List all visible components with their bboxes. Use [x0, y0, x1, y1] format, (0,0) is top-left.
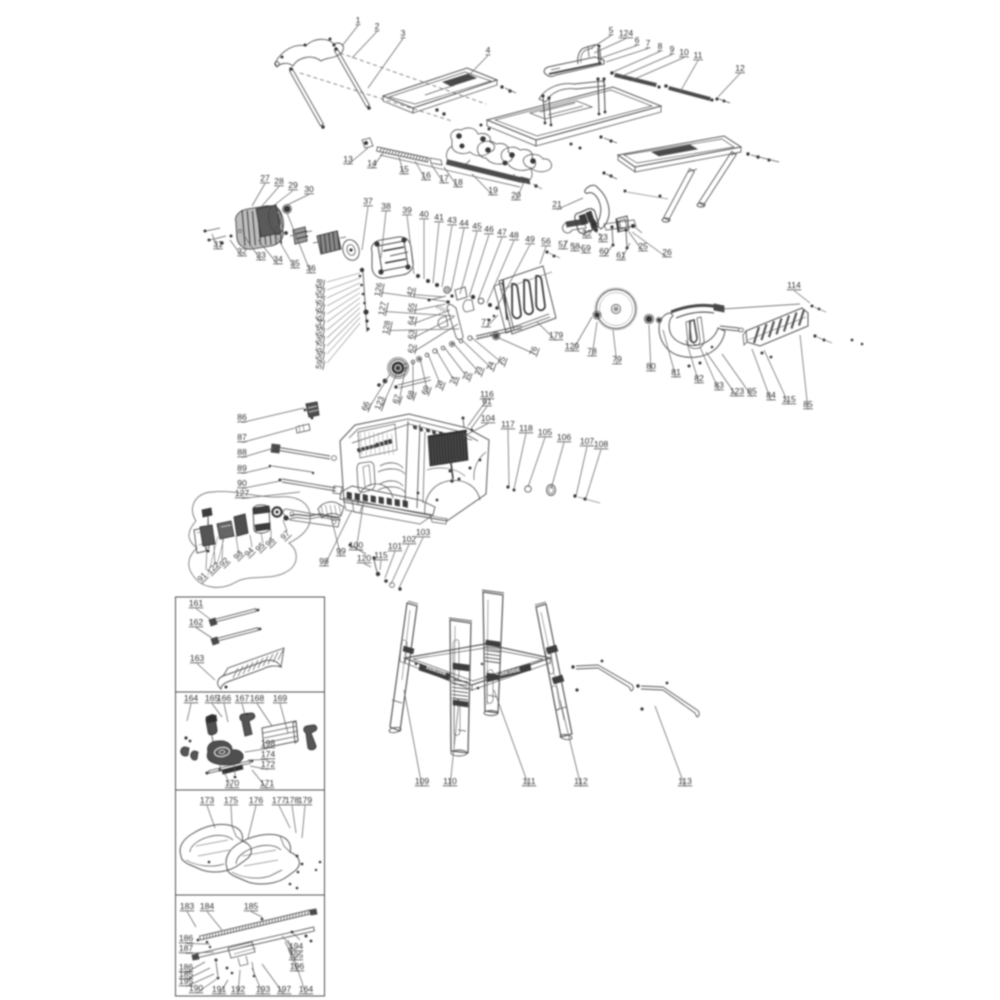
svg-text:186: 186 [179, 933, 194, 943]
svg-text:109: 109 [415, 776, 430, 786]
svg-text:179: 179 [298, 795, 313, 805]
svg-text:5: 5 [609, 25, 614, 35]
svg-text:58: 58 [570, 241, 580, 251]
svg-text:196: 196 [290, 961, 305, 971]
svg-text:173: 173 [200, 795, 215, 805]
svg-text:26: 26 [662, 247, 672, 257]
svg-text:193: 193 [256, 984, 271, 994]
svg-text:32: 32 [237, 246, 247, 256]
svg-text:101: 101 [388, 541, 403, 551]
svg-text:115: 115 [374, 550, 388, 560]
svg-text:190: 190 [189, 983, 204, 993]
svg-text:37: 37 [363, 196, 373, 206]
svg-text:192: 192 [231, 984, 246, 994]
svg-text:10: 10 [679, 47, 689, 57]
svg-text:117: 117 [501, 419, 515, 429]
svg-text:112: 112 [574, 776, 588, 786]
svg-text:2: 2 [375, 21, 380, 31]
svg-text:7: 7 [646, 38, 651, 48]
svg-text:83: 83 [714, 380, 724, 390]
svg-text:46: 46 [484, 224, 494, 234]
svg-text:114: 114 [787, 280, 801, 290]
svg-text:175: 175 [224, 795, 239, 805]
svg-text:164: 164 [184, 693, 199, 703]
svg-text:107: 107 [580, 436, 595, 446]
svg-text:82: 82 [694, 373, 704, 383]
svg-text:166: 166 [217, 693, 232, 703]
svg-text:197: 197 [277, 984, 292, 994]
svg-text:44: 44 [459, 218, 469, 228]
svg-text:6: 6 [635, 35, 640, 45]
svg-text:38: 38 [381, 201, 391, 211]
svg-text:23: 23 [598, 232, 608, 242]
svg-text:40: 40 [419, 209, 429, 219]
svg-text:29: 29 [288, 180, 298, 190]
svg-text:129: 129 [565, 341, 580, 351]
svg-text:85: 85 [803, 399, 813, 409]
svg-text:103: 103 [416, 527, 431, 537]
svg-text:118: 118 [519, 423, 533, 433]
svg-text:35: 35 [290, 258, 300, 268]
svg-text:89: 89 [237, 463, 247, 473]
svg-text:169: 169 [273, 693, 288, 703]
svg-text:47: 47 [497, 227, 507, 237]
svg-text:85: 85 [747, 386, 757, 396]
svg-text:18: 18 [453, 177, 463, 187]
svg-text:99: 99 [336, 546, 346, 556]
svg-text:36: 36 [306, 263, 316, 273]
svg-text:179: 179 [549, 330, 564, 340]
svg-text:80: 80 [646, 361, 656, 371]
svg-text:120: 120 [357, 553, 372, 563]
svg-text:1: 1 [356, 15, 361, 25]
svg-text:123: 123 [730, 386, 745, 396]
svg-text:21: 21 [552, 199, 562, 209]
svg-text:33: 33 [256, 250, 266, 260]
svg-text:57: 57 [558, 239, 568, 249]
svg-text:171: 171 [260, 778, 275, 788]
svg-text:20: 20 [511, 190, 521, 200]
svg-text:41: 41 [434, 212, 444, 222]
svg-text:19: 19 [488, 185, 498, 195]
svg-text:59: 59 [581, 243, 591, 253]
svg-text:15: 15 [399, 164, 409, 174]
svg-text:56: 56 [541, 236, 551, 246]
svg-text:61: 61 [616, 250, 626, 260]
svg-text:4: 4 [486, 45, 491, 55]
svg-text:106: 106 [557, 432, 572, 442]
svg-text:28: 28 [274, 176, 284, 186]
svg-text:105: 105 [538, 427, 553, 437]
svg-text:90: 90 [237, 478, 247, 488]
svg-text:100: 100 [349, 540, 364, 550]
svg-text:34: 34 [273, 254, 283, 264]
svg-text:45: 45 [472, 221, 482, 231]
svg-text:77: 77 [481, 317, 491, 327]
svg-text:162: 162 [189, 617, 204, 627]
svg-text:22: 22 [582, 228, 592, 238]
svg-text:174: 174 [261, 749, 276, 759]
svg-text:49: 49 [525, 234, 535, 244]
svg-text:43: 43 [447, 215, 457, 225]
svg-text:187: 187 [179, 943, 194, 953]
svg-text:170: 170 [225, 778, 240, 788]
svg-text:110: 110 [443, 776, 457, 786]
svg-text:9: 9 [670, 44, 675, 54]
svg-text:60: 60 [599, 246, 609, 256]
svg-text:61: 61 [482, 396, 492, 406]
svg-text:184: 184 [200, 901, 215, 911]
svg-text:111: 111 [522, 776, 535, 786]
svg-text:81: 81 [671, 367, 681, 377]
svg-text:16: 16 [421, 170, 431, 180]
svg-text:113: 113 [678, 776, 692, 786]
svg-text:12: 12 [735, 63, 745, 73]
svg-text:185: 185 [244, 901, 259, 911]
svg-text:17: 17 [439, 173, 449, 183]
svg-text:168: 168 [250, 693, 265, 703]
svg-text:78: 78 [587, 346, 597, 356]
svg-text:108: 108 [594, 439, 609, 449]
svg-text:11: 11 [694, 50, 703, 60]
svg-text:191: 191 [212, 984, 227, 994]
svg-text:163: 163 [190, 653, 205, 663]
svg-text:161: 161 [189, 598, 204, 608]
svg-text:183: 183 [180, 901, 195, 911]
svg-text:176: 176 [249, 795, 264, 805]
svg-text:98: 98 [319, 556, 329, 566]
svg-text:31: 31 [213, 239, 223, 249]
svg-text:87: 87 [237, 432, 247, 442]
svg-text:115: 115 [782, 394, 796, 404]
svg-text:198: 198 [261, 738, 276, 748]
svg-text:3: 3 [401, 28, 406, 38]
svg-text:164: 164 [299, 984, 314, 994]
svg-text:86: 86 [237, 412, 247, 422]
svg-text:48: 48 [509, 230, 519, 240]
svg-text:84: 84 [766, 390, 776, 400]
svg-text:14: 14 [367, 158, 377, 168]
svg-text:124: 124 [619, 28, 634, 38]
svg-text:104: 104 [481, 413, 496, 423]
svg-text:30: 30 [304, 184, 314, 194]
svg-text:79: 79 [612, 354, 622, 364]
svg-text:8: 8 [658, 41, 663, 51]
svg-text:88: 88 [237, 447, 247, 457]
svg-text:172: 172 [261, 759, 276, 769]
svg-text:27: 27 [260, 173, 270, 183]
svg-text:102: 102 [402, 534, 417, 544]
svg-text:167: 167 [235, 693, 250, 703]
svg-text:39: 39 [402, 205, 412, 215]
svg-text:13: 13 [343, 154, 353, 164]
